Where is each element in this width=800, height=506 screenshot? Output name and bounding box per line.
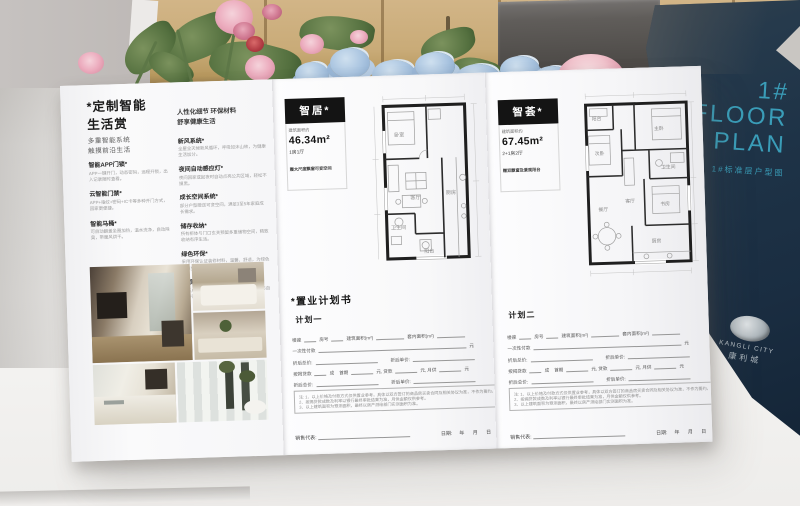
white-card-behind-flowers bbox=[128, 0, 159, 67]
plan-two-label: 计划二 bbox=[508, 309, 535, 321]
unit-name-badge: 智居* bbox=[285, 97, 346, 124]
form-label: 一次性付款 bbox=[292, 348, 315, 355]
form-label: 楼座 bbox=[507, 335, 516, 341]
brochure-panel-right: 智荟* 建筑面积约 67.45m² 2+1房2厅 赠双飘窗及景观阳台 bbox=[485, 66, 713, 449]
room-label: 阳台 bbox=[424, 248, 434, 255]
form-label: 首期 bbox=[554, 367, 563, 373]
form-blank-line bbox=[610, 364, 632, 371]
form-label: 房号 bbox=[534, 334, 543, 340]
area-value: 67.45m² bbox=[502, 134, 556, 148]
plant-shape bbox=[239, 370, 255, 382]
floorplan-unit-b: 阳台 次卧 主卧 客厅 餐厅 卫生间 书房 厨房 bbox=[573, 88, 701, 284]
rooms-value: 1房1厅 bbox=[289, 147, 343, 156]
heading-line1: *定制智能 bbox=[86, 98, 146, 114]
room-label: 卫生间 bbox=[661, 163, 676, 170]
form-label: 折后总价: bbox=[293, 360, 313, 367]
brochure-panel-left: *定制智能 生活赏 多重智能系统 触摸前沿生活 智能APP门锁*APP一键开门，… bbox=[60, 79, 284, 461]
form-label: 元, bbox=[376, 369, 382, 375]
item-desc: 可自动翻盖坐圈加热，温水洗净，自动除臭，带暖风烘干。 bbox=[91, 227, 173, 242]
room-label: 主卧 bbox=[654, 125, 664, 132]
room-label: 客厅 bbox=[625, 197, 635, 204]
ymd-label: 年 月 日 bbox=[674, 428, 706, 436]
bed-shape bbox=[200, 284, 257, 306]
form-blank-line bbox=[414, 376, 476, 384]
detail-heading: 人性化细节 环保材料 舒享健康生活 bbox=[177, 106, 266, 128]
room-label: 书房 bbox=[660, 200, 670, 207]
headboard-shape bbox=[238, 268, 256, 283]
detail-item: 新风系统*全屋全天候新风循环，呼吸如沐山林，为健康生活加分。 bbox=[178, 133, 267, 159]
kitchen-photo bbox=[93, 363, 177, 426]
form-label: 元 bbox=[684, 341, 689, 347]
form-blank-line bbox=[546, 333, 558, 339]
form-blank-line bbox=[437, 332, 465, 339]
plan-two-footer: 销售代表: 日期: 年 月 日 bbox=[510, 428, 706, 441]
detail-item: 夜间自动感应灯*夜间回家或起夜时自动点亮公共区域，轻松不摸黑。 bbox=[179, 162, 268, 188]
plan-book-title: *置业计划书 bbox=[291, 291, 353, 308]
form-label: 建筑面积(m²) bbox=[346, 335, 373, 342]
item-desc: 部分户型赠送可变空间，满足3至5年家庭成长需求。 bbox=[180, 200, 268, 215]
room-label: 卧室 bbox=[394, 131, 404, 138]
form-blank-line bbox=[316, 379, 378, 387]
unit-card-body: 建筑面积约 46.34m² 1房1厅 赠大尺度飘窗可变空间 bbox=[285, 122, 347, 191]
unit-note: 赠双飘窗及景观阳台 bbox=[503, 166, 557, 174]
smart-items-column: 智能APP门锁*APP一键开门，动态密码，远程开锁，出入记录随时查看。 云智能门… bbox=[88, 158, 173, 242]
plan-one-label: 计划一 bbox=[295, 314, 322, 326]
smart-item: 智能马桶*可自动翻盖坐圈加热，温水洗净，自动除臭，带暖风烘干。 bbox=[90, 216, 173, 241]
detail-heading-line2: 舒享健康生活 bbox=[177, 118, 216, 126]
rooms-value: 2+1房2厅 bbox=[502, 148, 556, 157]
form-label: 折后总价: bbox=[508, 357, 528, 364]
kitchen-cabinets-shape bbox=[94, 395, 177, 426]
room-label: 客厅 bbox=[410, 194, 420, 201]
form-label: 折后单价: bbox=[391, 379, 411, 386]
form-blank-line bbox=[529, 367, 541, 373]
item-desc: 夜间回家或起夜时自动点亮公共区域，轻松不摸黑。 bbox=[179, 172, 267, 187]
trifold-brochure: *定制智能 生活赏 多重智能系统 触摸前沿生活 智能APP门锁*APP一键开门，… bbox=[60, 66, 712, 462]
item-title: 云智能门禁* bbox=[89, 187, 171, 199]
smart-living-subheading: 多重智能系统 触摸前沿生活 bbox=[88, 136, 131, 158]
unit-card-zhiju: 智居* 建筑面积约 46.34m² 1房1厅 赠大尺度飘窗可变空间 bbox=[285, 97, 348, 191]
room-label: 厨房 bbox=[446, 189, 456, 196]
form-blank-line bbox=[519, 334, 531, 340]
form-label: 房号 bbox=[319, 337, 328, 343]
form-label: 套内面积(m²) bbox=[407, 334, 434, 341]
form-label: 贷款 bbox=[383, 368, 392, 374]
form-label: 元 bbox=[679, 363, 684, 369]
room-label: 卫生间 bbox=[391, 224, 406, 231]
bedroom-photo bbox=[192, 262, 265, 311]
tv-shape bbox=[97, 292, 128, 319]
unit-card-body: 建筑面积约 67.45m² 2+1房2厅 赠双飘窗及景观阳台 bbox=[498, 123, 560, 192]
form-blank-line bbox=[376, 333, 404, 340]
cabinet-handle bbox=[446, 16, 450, 40]
room-label: 次卧 bbox=[595, 150, 605, 157]
cover-title-line3: PLAN bbox=[690, 127, 787, 159]
area-value: 46.34m² bbox=[289, 133, 343, 147]
form-label: 元, bbox=[635, 365, 641, 371]
date-label: 日期: bbox=[656, 429, 668, 436]
form-label: 贷款 bbox=[598, 366, 607, 372]
ymd-label: 年 月 日 bbox=[459, 429, 491, 437]
plan-one-footer: 销售代表: 日期: 年 月 日 bbox=[295, 429, 491, 442]
item-desc: 所有柜体与门口玄关预留多重储物空间，精致收纳有序生活。 bbox=[181, 229, 269, 244]
form-label: 按揭贷款 bbox=[293, 371, 312, 378]
form-label: 一次性付款 bbox=[507, 346, 530, 353]
form-label: 月供 bbox=[642, 364, 651, 370]
sub-line1: 多重智能系统 bbox=[88, 137, 131, 145]
room-label: 餐厅 bbox=[598, 206, 608, 213]
sales-rep-label: 销售代表: bbox=[295, 434, 317, 442]
interior-photo-collage bbox=[90, 262, 269, 425]
form-label: 元, bbox=[420, 367, 426, 373]
form-blank-line bbox=[318, 431, 410, 440]
form-blank-line bbox=[531, 376, 593, 384]
balcony-photo bbox=[177, 360, 269, 423]
form-blank-line bbox=[351, 368, 373, 375]
plant-shape bbox=[219, 320, 231, 332]
form-label: 元 bbox=[469, 344, 474, 350]
detail-item: 储存收纳*所有柜体与门口玄关预留多重储物空间，精致收纳有序生活。 bbox=[180, 218, 269, 244]
form-label: 折后单价: bbox=[390, 357, 410, 364]
form-blank-line bbox=[534, 430, 626, 439]
detail-item: 成长空间系统*部分户型赠送可变空间，满足3至5年家庭成长需求。 bbox=[179, 190, 268, 216]
form-blank-line bbox=[439, 365, 461, 372]
round-table-shape bbox=[244, 400, 266, 415]
form-label: 元 bbox=[464, 366, 469, 372]
sink-shape bbox=[104, 400, 124, 405]
form-label: 楼座 bbox=[292, 338, 301, 344]
form-label: 月供 bbox=[427, 367, 436, 373]
item-desc: APP一键开门，动态密码，远程开锁，出入记录随时查看。 bbox=[89, 168, 171, 183]
living-room-photo bbox=[90, 264, 193, 363]
form-label: 折后总价: bbox=[293, 382, 313, 389]
form-label: 折后单价: bbox=[606, 376, 626, 383]
form-label: 折后单价: bbox=[605, 354, 625, 361]
photo-of-trifold-floorplan-brochure: { "colors":{"cover_navy":"#1d3347","cove… bbox=[0, 0, 800, 500]
form-blank-line bbox=[304, 336, 316, 342]
form-label: 按揭贷款 bbox=[508, 368, 527, 375]
form-blank-line bbox=[395, 367, 417, 374]
unit-note: 赠大尺度飘窗可变空间 bbox=[290, 165, 344, 173]
form-blank-line bbox=[331, 335, 343, 341]
detail-heading-line1: 人性化细节 环保材料 bbox=[177, 107, 236, 116]
item-desc: 全屋全天候新风循环，呼吸如沐山林，为健康生活加分。 bbox=[178, 144, 266, 159]
form-label: 元, bbox=[591, 366, 597, 372]
cover-title-block: 1# FLOOR PLAN 1#标准层户型图 bbox=[689, 74, 790, 179]
form-blank-line bbox=[629, 373, 691, 381]
date-label: 日期: bbox=[441, 430, 453, 437]
item-title: 智能APP门锁* bbox=[88, 158, 170, 170]
smart-item: 智能APP门锁*APP一键开门，动态密码，远程开锁，出入记录随时查看。 bbox=[88, 158, 171, 183]
form-label: 套内面积(m²) bbox=[622, 331, 649, 338]
unit-name: 智居* bbox=[299, 103, 331, 119]
brand-emblem-icon bbox=[728, 313, 772, 345]
form-label: 成 bbox=[329, 370, 334, 376]
form-blank-line bbox=[314, 370, 326, 376]
heading-line2: 生活赏 bbox=[87, 116, 128, 131]
plan-two-notes-box: 注: 1、以上价格及付款方式仅供置业参考，具体以双方签订的商品房买卖合同及相关协… bbox=[509, 382, 713, 411]
unit-name-badge: 智荟* bbox=[498, 98, 559, 125]
form-blank-line bbox=[652, 329, 680, 336]
floorplan-unit-a: 卧室 客厅 卫生间 厨房 阳台 bbox=[366, 91, 486, 276]
unit-name: 智荟* bbox=[512, 104, 544, 120]
form-blank-line bbox=[654, 363, 676, 370]
sales-rep-label: 销售代表: bbox=[510, 433, 532, 441]
unit-card-zhihui: 智荟* 建筑面积约 67.45m² 2+1房2厅 赠双飘窗及景观阳台 bbox=[498, 98, 561, 192]
form-label: 折后总价: bbox=[508, 379, 528, 386]
item-desc: APP+指纹+密码+IC卡等多种开门方式，回家更便捷。 bbox=[90, 197, 172, 212]
plan-one-form: 楼座房号建筑面积(m²)套内面积(m²)一次性付款元折后总价:折后单价:按揭贷款… bbox=[292, 327, 490, 389]
form-label: 建筑面积(m²) bbox=[561, 333, 588, 340]
form-blank-line bbox=[566, 365, 588, 372]
form-label: 成 bbox=[544, 368, 549, 374]
sub-line2: 触摸前沿生活 bbox=[88, 147, 131, 155]
smart-living-heading: *定制智能 生活赏 bbox=[86, 97, 147, 134]
plan-one-notes-box: 注: 1、以上价格及付款方式仅供置业参考，具体以双方签订的商品房买卖合同及相关协… bbox=[294, 384, 497, 413]
form-label: 首期 bbox=[339, 370, 348, 376]
bathroom-photo bbox=[193, 311, 266, 360]
vanity-counter-shape bbox=[198, 337, 262, 353]
smart-item: 云智能门禁*APP+指纹+密码+IC卡等多种开门方式，回家更便捷。 bbox=[89, 187, 172, 212]
range-hood-shape bbox=[145, 369, 168, 390]
form-blank-line bbox=[591, 331, 619, 338]
room-label: 厨房 bbox=[652, 237, 662, 244]
cabinet-shape bbox=[161, 320, 184, 347]
plan-two-form: 楼座房号建筑面积(m²)套内面积(m²)一次性付款元折后总价:折后单价:按揭贷款… bbox=[507, 324, 705, 386]
brochure-panel-middle: 智居* 建筑面积约 46.34m² 1房1厅 赠大尺度飘窗可变空间 bbox=[272, 73, 497, 456]
